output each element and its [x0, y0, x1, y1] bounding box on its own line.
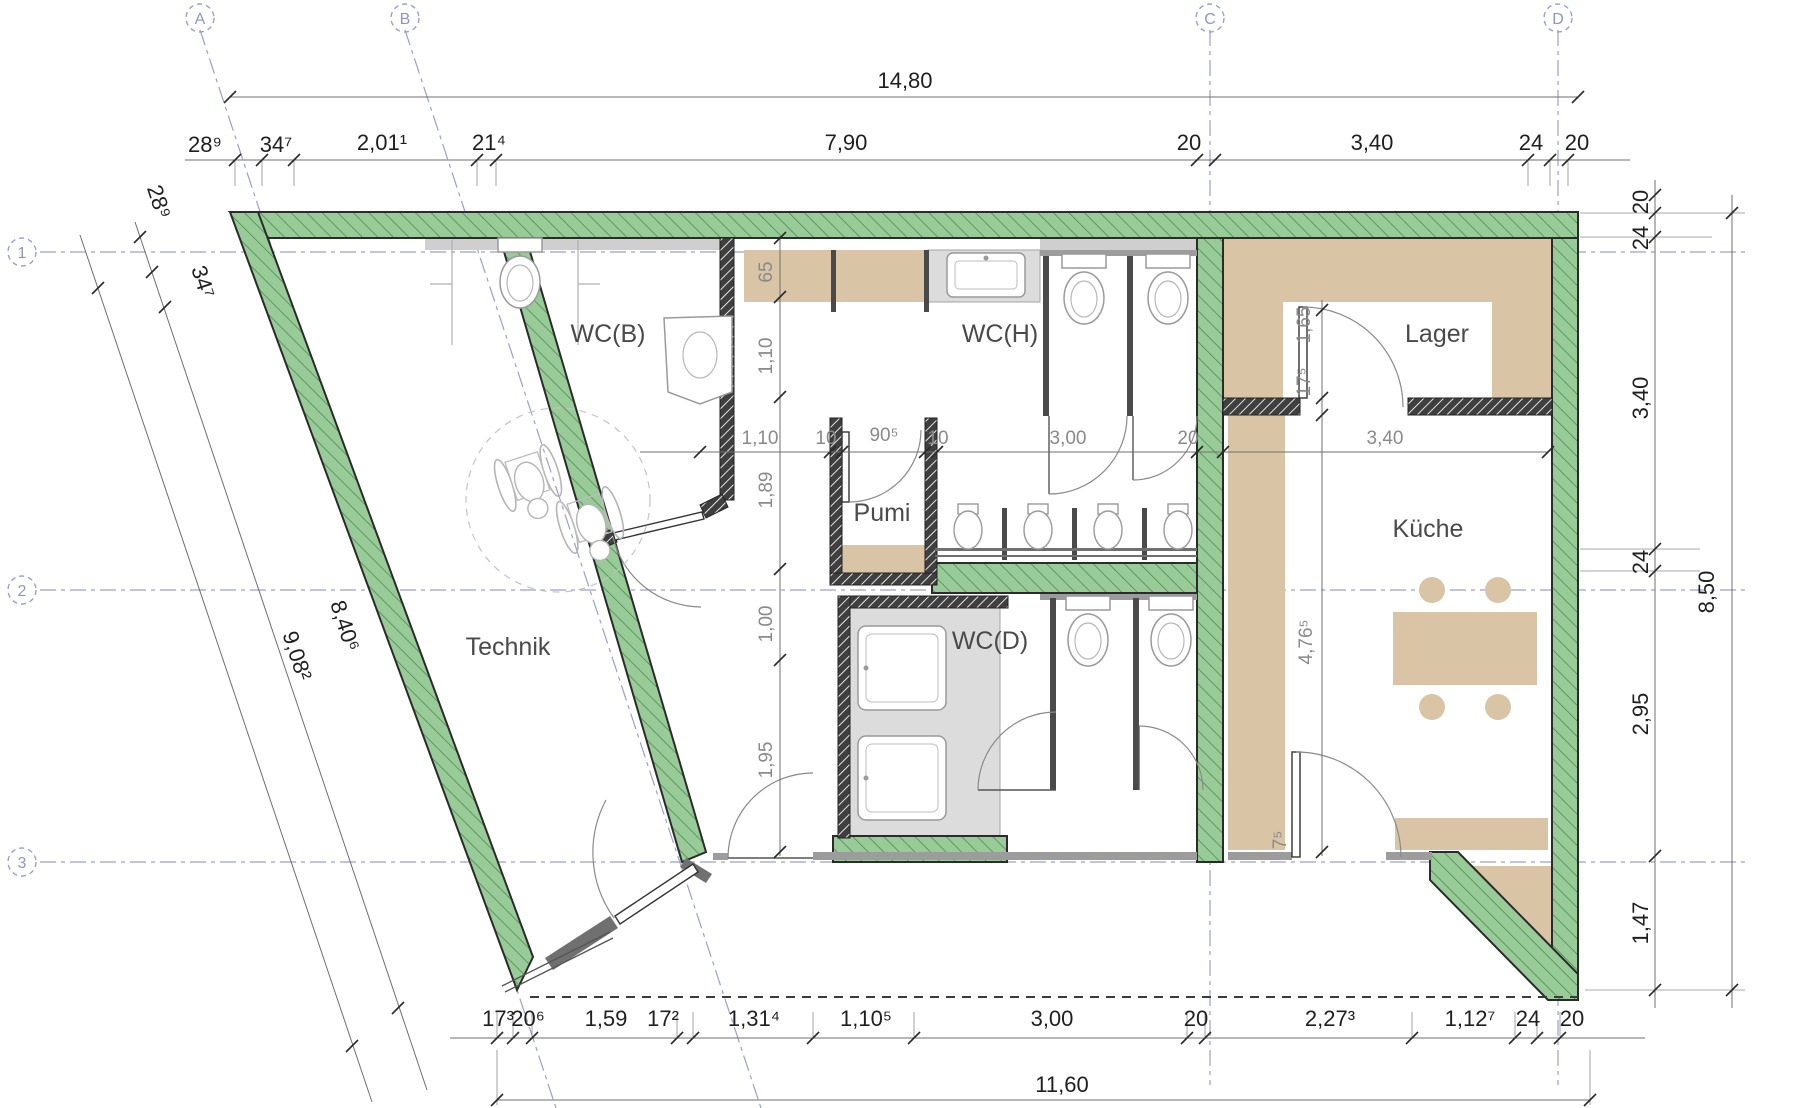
wcd-counter-west-wall — [838, 596, 850, 838]
dim: 17² — [647, 1006, 679, 1031]
wheelchair-icon — [490, 443, 570, 528]
wcd-counter-north-wall — [838, 596, 1008, 608]
dim: 20 — [1560, 1006, 1584, 1031]
room-label-lager: Lager — [1405, 320, 1469, 348]
kitchen-south-counter — [1395, 818, 1548, 850]
urinal-divider — [1002, 508, 1007, 560]
dim: 3,00 — [1050, 428, 1087, 449]
dim: 1,95 — [756, 742, 777, 779]
dim: 20 — [1184, 1006, 1208, 1031]
dim: 1,10 — [742, 428, 779, 449]
floor-plan-page: A B C D 1 2 3 — [0, 0, 1800, 1108]
dim: 2,01¹ — [357, 130, 407, 155]
south-glazing — [813, 852, 1197, 860]
dim: 24 — [1516, 1006, 1540, 1031]
dim: 10 — [815, 428, 836, 449]
kitchen-west-counter — [1228, 415, 1285, 850]
dim: 2,27³ — [1305, 1006, 1355, 1031]
axis-label-D: D — [1552, 11, 1564, 28]
wcb-sink — [664, 316, 732, 404]
wall-north — [230, 212, 1578, 238]
wcb-north-lining — [425, 238, 734, 250]
toilet — [1062, 254, 1106, 324]
dim-kitchen-height: 4,76⁵ — [1296, 620, 1317, 665]
dim: 24 — [1628, 226, 1653, 250]
wcd-stall-door-swing — [1139, 726, 1203, 790]
entrance-door-leaf — [615, 864, 698, 924]
urinal-divider — [1142, 508, 1147, 560]
wcb-door-leaf — [613, 512, 704, 540]
wall-axis-c — [1197, 238, 1223, 862]
kitchen-door-leaf — [1292, 752, 1300, 857]
axis-label-B: B — [400, 11, 411, 28]
corridor-door-swing — [728, 773, 813, 858]
wall-west-diagonal — [230, 212, 533, 990]
dim-kitchen-door: 7⁵ — [1270, 831, 1291, 849]
toilet — [498, 238, 542, 308]
wch-stall-partition — [1127, 256, 1133, 416]
urinal-rail — [935, 555, 1197, 557]
dim: 20 — [1177, 428, 1198, 449]
dim-right-total: 8,50 — [1694, 571, 1719, 614]
dim-bottom-total: 11,60 — [1035, 1072, 1088, 1097]
wch-north-lining — [1040, 238, 1197, 250]
dim-top-total: 14,80 — [877, 68, 932, 93]
dim: 20 — [1177, 130, 1201, 155]
room-label-wcb: WC(B) — [571, 320, 646, 348]
dim: 1,31⁴ — [728, 1006, 780, 1031]
entrance-sill — [545, 916, 618, 970]
wch-stall-partition — [1043, 256, 1049, 416]
urinal-rail — [935, 548, 1197, 551]
wcb-south-wall-stub — [700, 494, 728, 518]
axis-label-1: 1 — [18, 245, 27, 262]
lager-south-wall — [1223, 398, 1300, 415]
urinal — [1164, 504, 1192, 549]
dim: 10 — [927, 428, 948, 449]
kitchen-south-sill — [1228, 852, 1292, 860]
dim: 17³ — [482, 1006, 514, 1031]
dim: 3,00 — [1031, 1006, 1074, 1031]
dim: 7,90 — [825, 130, 868, 155]
kitchen-chair — [1419, 694, 1445, 720]
kitchen-door-swing — [1296, 752, 1401, 857]
wall-wch-south — [932, 563, 1197, 593]
urinal — [1024, 504, 1052, 549]
pumi-floor — [842, 545, 925, 573]
kitchen-south-sill — [1386, 852, 1432, 860]
dim: 34⁷ — [186, 262, 220, 301]
dim: 3,40 — [1628, 377, 1653, 420]
dim: 3,40 — [1367, 428, 1404, 449]
dim: 1,89 — [756, 472, 777, 509]
dimension-left: 28⁹ 34⁷ 9,08² 8,40⁶ — [80, 182, 427, 1102]
pumi-south-wall — [830, 573, 937, 585]
room-label-kueche: Küche — [1393, 515, 1464, 543]
wcd-sink — [858, 736, 946, 820]
dim: 1,00 — [756, 606, 777, 643]
toilet — [1146, 254, 1190, 324]
toilet — [1149, 596, 1193, 666]
dim: 1,59 — [585, 1006, 628, 1031]
wcd-stall-partition — [1133, 598, 1139, 790]
room-label-wch: WC(H) — [962, 320, 1038, 348]
dim: 34⁷ — [260, 132, 292, 157]
dim: 20 — [1565, 130, 1589, 155]
wch-north-partition — [831, 250, 836, 312]
dim: 21⁴ — [472, 130, 506, 155]
dim: 28⁹ — [142, 182, 176, 222]
lager-south-wall — [1408, 398, 1552, 415]
dim: 8,40⁶ — [325, 597, 365, 654]
axis-label-C: C — [1204, 11, 1216, 28]
room-label-pumi: Pumi — [854, 499, 911, 527]
dim: 1,47 — [1628, 902, 1653, 945]
dim: 24 — [1519, 130, 1543, 155]
room-label-wcd: WC(D) — [952, 627, 1028, 655]
dim: 28⁹ — [188, 132, 222, 157]
dim-lager-door-width: 1,65 — [1294, 307, 1315, 344]
axis-label-2: 2 — [18, 583, 27, 600]
dimension-bottom: 17³ 20⁶ 1,59 17² 1,31⁴ 1,10⁵ 3,00 20 2,2… — [450, 1006, 1645, 1106]
urinal-divider — [1072, 508, 1077, 560]
urinal — [1094, 504, 1122, 549]
dim-lager-door-wall: 17⁵ — [1294, 367, 1315, 396]
dimension-right: 20 24 3,40 24 2,95 1,47 8,50 — [1580, 180, 1745, 1008]
dim: 3,40 — [1351, 130, 1394, 155]
wcd-stall-partition — [1050, 598, 1056, 790]
urinal — [954, 504, 982, 549]
axis-label-A: A — [195, 11, 206, 28]
faucet — [864, 776, 869, 781]
floor-plan-drawing: A B C D 1 2 3 — [0, 0, 1800, 1108]
wcd-sink — [858, 626, 946, 710]
kitchen-table — [1393, 612, 1537, 685]
dim: 65 — [756, 261, 777, 282]
kitchen-chair — [1419, 577, 1445, 603]
dim: 20⁶ — [511, 1006, 545, 1031]
dim: 1,10⁵ — [840, 1006, 892, 1031]
dim: 1,10 — [756, 338, 777, 375]
entrance-door-swing — [593, 800, 614, 918]
dim: 1,12⁷ — [1445, 1006, 1496, 1031]
dim: 24 — [1628, 550, 1653, 574]
wall-east — [1552, 238, 1578, 1000]
toilet — [1066, 596, 1110, 666]
faucet — [864, 666, 869, 671]
wch-north-partition — [924, 250, 929, 312]
dim: 9,08² — [277, 628, 316, 683]
room-label-technik: Technik — [466, 633, 551, 661]
dim: 2,95 — [1628, 693, 1653, 736]
faucet — [984, 256, 989, 261]
kitchen-chair — [1485, 694, 1511, 720]
pumi-door-leaf — [842, 432, 849, 502]
kitchen-chair — [1485, 577, 1511, 603]
dim: 20 — [1628, 190, 1653, 214]
axis-label-3: 3 — [18, 855, 27, 872]
south-glazing — [713, 853, 728, 860]
dim: 90⁵ — [869, 425, 898, 446]
dimension-top: 14,80 28⁹ 34⁷ 2,01¹ 21⁴ 7,90 20 3,40 24 … — [185, 68, 1630, 186]
